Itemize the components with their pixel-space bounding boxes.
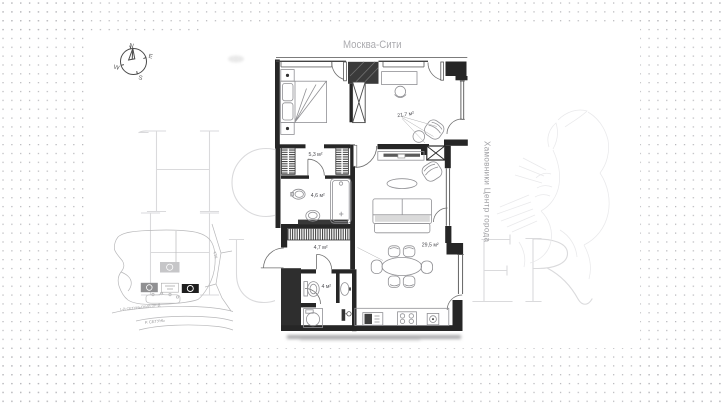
svg-text:E: E bbox=[148, 54, 153, 61]
svg-text:ТТК: ТТК bbox=[212, 251, 219, 260]
svg-text:S: S bbox=[138, 75, 143, 82]
svg-text:Москва-Сити: Москва-Сити bbox=[343, 39, 402, 51]
svg-text:W: W bbox=[113, 65, 120, 72]
svg-text:5,3 м²: 5,3 м² bbox=[309, 152, 323, 158]
svg-text:4,6 м²: 4,6 м² bbox=[311, 193, 325, 199]
svg-text:1-Й СЕТУНЬСКИЙ ПР-Д: 1-Й СЕТУНЬСКИЙ ПР-Д bbox=[120, 303, 161, 312]
svg-text:29,5 м²: 29,5 м² bbox=[422, 242, 439, 248]
svg-text:Хамовники Центр города: Хамовники Центр города bbox=[483, 141, 492, 243]
svg-text:4 м²: 4 м² bbox=[322, 284, 332, 290]
svg-text:4,7 м²: 4,7 м² bbox=[314, 245, 328, 251]
